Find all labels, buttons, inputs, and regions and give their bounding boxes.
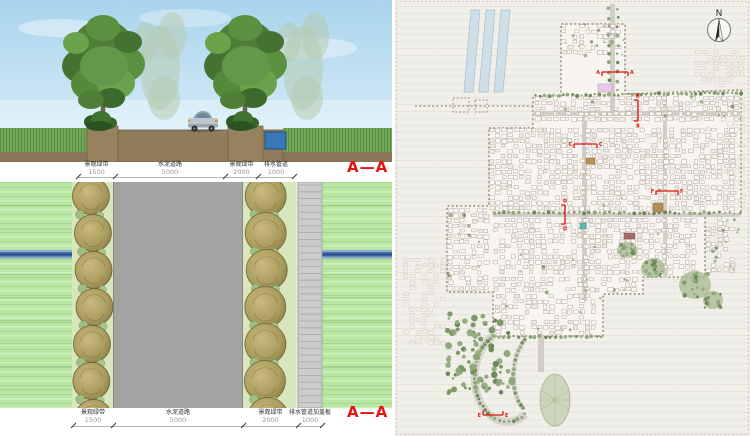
marker-label-D: D [563, 227, 567, 233]
planter-right [228, 126, 263, 162]
marker-label-F: F [651, 189, 654, 195]
grass-left [0, 128, 88, 152]
marker-label-B: B [636, 124, 640, 130]
dimension-value: 5000 [115, 169, 225, 176]
village-site-plan: AABBCCDDEEFF N [395, 0, 750, 436]
marker-label-A: A [630, 70, 634, 76]
dimension-value: 1500 [78, 169, 115, 176]
dimension-value: 1000 [298, 417, 322, 424]
planter-left [87, 126, 118, 162]
cross-section-rendering [0, 0, 392, 162]
dimension-baseline [78, 177, 294, 178]
pond-strips [464, 10, 510, 92]
road-plan-panel: 景观绿带1500水泥道路5000景观绿带2000排水管道加盖板1000 A—A [0, 182, 392, 436]
marker-label-C: C [599, 142, 603, 148]
village-site-plan-panel: AABBCCDDEEFF N [395, 0, 750, 436]
grass-right [283, 128, 392, 152]
dimension-value: 1500 [73, 417, 113, 424]
cement-road [113, 182, 243, 408]
road-cross-section-panel: 景观绿带1500水泥道路5000景观绿带2000排水管道1000 A—A [0, 0, 392, 182]
dimension-value: 2000 [225, 169, 258, 176]
marker-label-D: D [563, 199, 567, 205]
marker-label-E: E [505, 413, 508, 419]
marker-label-A: A [596, 70, 600, 76]
marker-label-F: F [680, 189, 683, 195]
covered-drain-strip [298, 182, 322, 408]
dimension-value: 2000 [243, 417, 298, 424]
section-label: A—A [347, 159, 388, 175]
dimension-value: 5000 [113, 417, 243, 424]
marker-label-C: C [568, 142, 572, 148]
north-label: N [716, 9, 723, 19]
section-dimension-band: 景观绿带1500水泥道路5000景观绿带2000排水管道1000 [0, 162, 392, 182]
marker-label-B: B [636, 94, 640, 100]
plan-dimension-band: 景观绿带1500水泥道路5000景观绿带2000排水管道加盖板1000 [0, 408, 392, 436]
plan-section-label: A—A [347, 404, 388, 420]
drainage-channel-box [265, 132, 286, 149]
road-plan-drawing [0, 182, 392, 408]
dimension-value: 1000 [258, 169, 294, 176]
marker-label-E: E [478, 413, 481, 419]
oval-garden [540, 374, 570, 426]
drawing-sheet: 景观绿带1500水泥道路5000景观绿带2000排水管道1000 A—A [0, 0, 750, 436]
